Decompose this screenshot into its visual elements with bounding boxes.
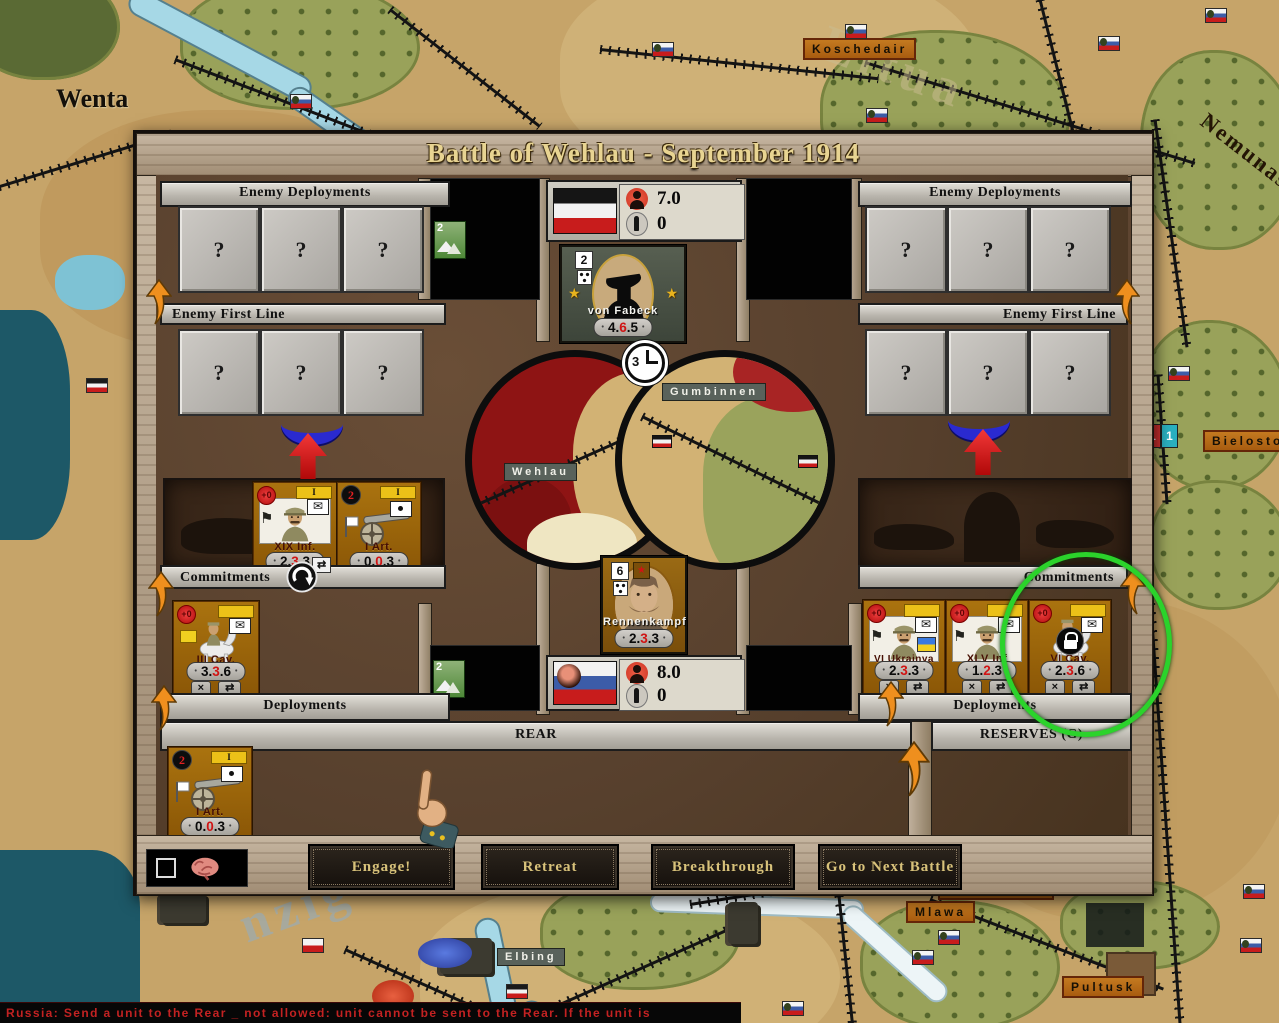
enemy-first-line-left-bar: Enemy First Line (160, 303, 446, 325)
commander-stats: 233 (615, 629, 674, 648)
dice-icon (577, 270, 592, 285)
scroll-arrow[interactable] (1114, 279, 1140, 325)
map-label-pultusk: Pultusk (1062, 976, 1144, 998)
brain-icon[interactable] (188, 855, 222, 881)
enemy-first-line-label: Enemy First Line (860, 305, 1116, 325)
card-slot-empty (746, 645, 852, 711)
enemy-first-line-label: Enemy First Line (172, 305, 444, 325)
envelope-icon: ✉ (915, 617, 937, 633)
german-flag-marker (652, 435, 672, 448)
enemy-deployments-right-bar: Enemy Deployments (858, 181, 1132, 207)
window-frame-bottom (136, 835, 1153, 895)
next-battle-button[interactable]: Go to Next Battle (818, 844, 962, 890)
bonus-badge: +0 (950, 604, 969, 623)
ukraine-flag-patch (917, 637, 936, 652)
count-badge: 2 (172, 750, 192, 770)
russian-flag (553, 661, 617, 705)
map-tooltip-panel (1086, 903, 1144, 947)
lake (55, 255, 125, 310)
unit-stats: 336 (187, 662, 246, 681)
commander-badge-value: 2 (575, 251, 593, 269)
city (160, 893, 206, 923)
checkbox[interactable] (156, 858, 176, 878)
flag-icon: ⚑ (260, 509, 273, 527)
card-slot-empty (746, 178, 852, 300)
battle-map-right-circle: Gumbinnen (615, 350, 835, 570)
deployments-left-bar: Deployments (160, 693, 450, 721)
russian-shells-value: 0 (657, 685, 667, 707)
unknown-enemy-card: ? (1029, 329, 1111, 416)
unknown-enemy-card: ? (260, 206, 342, 293)
bonus-badge: +0 (177, 605, 196, 624)
sea (0, 310, 70, 540)
silhouette (964, 492, 1020, 562)
count-badge: 2 (341, 485, 361, 505)
unknown-enemy-card: ? (342, 329, 424, 416)
envelope-icon: ✉ (307, 499, 329, 515)
retreat-button[interactable]: Retreat (481, 844, 619, 890)
strength-banner: I (296, 486, 332, 499)
commander-badge-value: 6 (611, 562, 629, 580)
ai-toggle-box (146, 849, 248, 887)
russian-side-panel: 8.0 0 (546, 655, 742, 711)
scroll-arrow[interactable] (151, 685, 177, 731)
german-morale-value: 7.0 (657, 188, 681, 210)
map-label-elbing: Elbing (497, 948, 565, 966)
window-frame-left (136, 175, 158, 837)
battle-round-clock: 3 (625, 343, 665, 383)
unknown-enemy-card: ? (1029, 206, 1111, 293)
russian-flag-marker (938, 930, 960, 945)
map-label-koschedair: Koschedair (803, 38, 916, 60)
dice-icon (613, 581, 628, 596)
terrain-card-value: 2 (436, 661, 442, 673)
rear-bar: REAR (160, 721, 912, 751)
strength-banner (904, 604, 940, 617)
map-label-bielostok: Bielostok (1203, 430, 1279, 452)
bonus-badge: +0 (257, 486, 276, 505)
morale-icon (626, 188, 648, 210)
map-label-wenta: Wenta (56, 84, 128, 114)
battle-window: Battle of Wehlau - September 1914 2 2 En… (133, 130, 1154, 896)
unit-stats: 233 (875, 661, 934, 680)
commander-stats: 465 (594, 318, 653, 337)
mountain-icon (446, 682, 460, 693)
unknown-enemy-card: ? (947, 206, 1029, 293)
unknown-enemy-card: ? (260, 329, 342, 416)
strength-banner: I (211, 751, 247, 764)
unit-stats: 003 (181, 817, 240, 836)
port-icon (418, 938, 472, 968)
scroll-arrow[interactable] (148, 571, 174, 617)
russian-flag-marker (1243, 884, 1265, 899)
danzig-flag-marker (302, 938, 324, 953)
battle-location-left: Wehlau (504, 463, 577, 481)
rear-label: REAR (162, 723, 910, 747)
russian-morale-value: 8.0 (657, 662, 681, 684)
russian-flag-marker (782, 1001, 804, 1016)
battle-title: Battle of Wehlau - September 1914 (136, 138, 1151, 169)
russian-flag-marker (1098, 36, 1120, 51)
annotation-circle (1000, 552, 1172, 737)
commander-name: von Fabeck (562, 305, 684, 317)
clock-round-number: 3 (632, 354, 639, 369)
russian-flag-marker (866, 108, 888, 123)
strength-banner: I (380, 486, 416, 499)
flag-icon: ⚑ (870, 627, 883, 645)
city (728, 902, 758, 944)
scroll-arrow[interactable] (146, 279, 172, 325)
command-dice-badge: 2 (575, 251, 593, 285)
engage-button[interactable]: Engage! (308, 844, 455, 890)
russian-flag-marker (845, 24, 867, 39)
unknown-enemy-card: ? (865, 329, 947, 416)
enemy-first-line-right-bar: Enemy First Line (858, 303, 1128, 325)
star-icon: ★ (665, 285, 678, 302)
game-screen: Litua nzig Wenta Nemunas Koschedair Biel… (0, 0, 1279, 1023)
unknown-enemy-card: ? (342, 206, 424, 293)
unknown-enemy-card: ? (178, 329, 260, 416)
german-shells-value: 0 (657, 213, 667, 235)
deployments-label: Deployments (162, 695, 448, 717)
shells-icon (626, 684, 648, 708)
unit-card-vi-ukrainya[interactable]: +0 ⚑ ✉ VI Ukrainya 233 × ⇄ (863, 600, 945, 698)
german-commander-card[interactable]: 2 ★ ★ von Fabeck 465 (560, 245, 686, 343)
unit-card-i-art-commit[interactable]: 2 I I Art. 003 (337, 482, 421, 576)
enemy-deployments-label: Enemy Deployments (860, 183, 1130, 203)
shells-icon (626, 212, 648, 236)
german-flag (553, 188, 617, 234)
german-flag-marker (506, 984, 528, 999)
envelope-icon: ✉ (229, 618, 251, 634)
clock-hand (646, 361, 658, 364)
commander-name: Rennenkampf (603, 616, 685, 628)
ammo-box-icon (390, 501, 412, 517)
enemy-deployments-left-bar: Enemy Deployments (160, 181, 450, 207)
unknown-enemy-card: ? (178, 206, 260, 293)
silhouette (1036, 520, 1114, 548)
flag-icon: ⚑ (953, 627, 966, 645)
unit-counter-cyan[interactable]: 1 (1161, 424, 1178, 448)
silhouette (874, 524, 954, 550)
terrain-card: 2 (434, 221, 466, 259)
battle-location-right: Gumbinnen (662, 383, 766, 401)
star-icon: ★ (568, 285, 581, 302)
enemy-deployments-label: Enemy Deployments (162, 183, 448, 203)
unit-card-iii-cav[interactable]: +0 ✉ III Cav. 336 × ⇄ (173, 601, 259, 699)
russian-flag-marker (912, 950, 934, 965)
russian-flag-marker (290, 94, 312, 109)
breakthrough-button[interactable]: Breakthrough (651, 844, 795, 890)
scroll-arrow[interactable] (878, 681, 904, 727)
russian-flag-marker (1168, 366, 1190, 381)
german-flag-marker (86, 378, 108, 393)
russian-flag-marker (1205, 8, 1227, 23)
map-label-mlawa: Mlawa (906, 901, 975, 923)
sea (0, 850, 140, 1023)
forest (0, 0, 120, 80)
morale-icon (626, 662, 648, 684)
window-frame-right (1131, 175, 1153, 837)
unknown-enemy-card: ? (865, 206, 947, 293)
status-message-bar: Russia: Send a unit to the Rear _ not al… (0, 1002, 741, 1023)
unit-card-i-art-rear[interactable]: 2 I I Art. 003 (168, 747, 252, 841)
cycle-icon[interactable] (286, 561, 318, 593)
status-message: Russia: Send a unit to the Rear _ not al… (6, 1006, 651, 1020)
imperial-emblem (557, 664, 581, 688)
command-dice-badge: 6 (611, 562, 629, 596)
mountain-icon (447, 243, 461, 254)
pennant-icon (180, 630, 197, 643)
russian-flag-marker (652, 42, 674, 57)
ammo-box-icon (221, 766, 243, 782)
bonus-badge: +0 (867, 604, 886, 623)
clock-face (625, 343, 665, 383)
german-side-panel: 7.0 0 (546, 180, 742, 242)
german-flag-marker (798, 455, 818, 468)
star-icon: ★ (633, 562, 650, 579)
terrain-card-value: 2 (437, 222, 443, 234)
russian-flag-marker (1240, 938, 1262, 953)
scroll-arrow[interactable] (898, 741, 930, 797)
strength-banner (218, 605, 254, 618)
russian-commander-card[interactable]: 6 ★ Rennenkampf 233 (601, 556, 687, 654)
hand-cursor (396, 766, 460, 848)
